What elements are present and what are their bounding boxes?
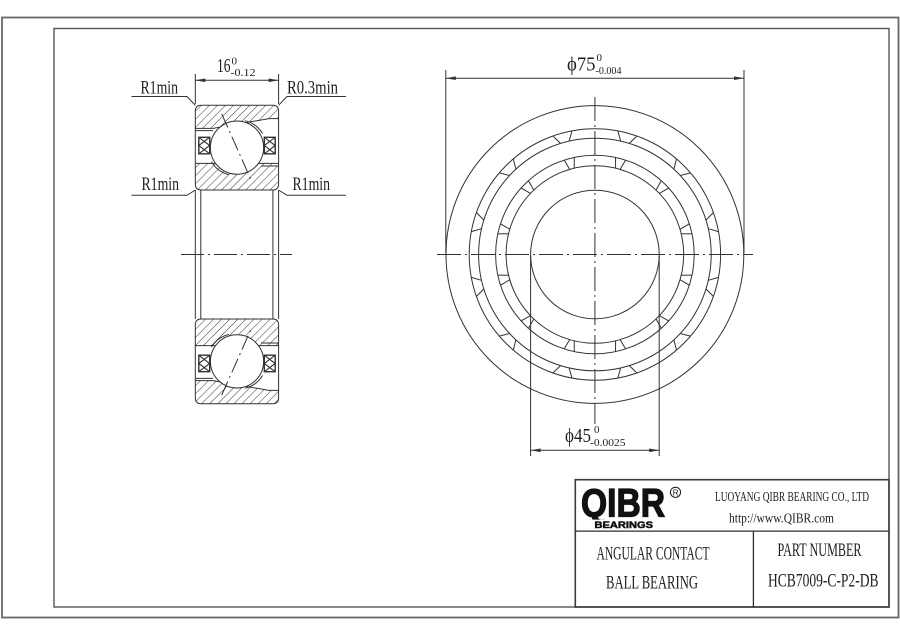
svg-text:R1min: R1min xyxy=(142,174,180,195)
svg-text:HCB7009-C-P2-DB: HCB7009-C-P2-DB xyxy=(768,571,879,592)
svg-text:QIBR: QIBR xyxy=(581,482,665,526)
svg-text:0: 0 xyxy=(594,424,600,436)
svg-text:R0.3min: R0.3min xyxy=(287,78,338,99)
svg-text:R1min: R1min xyxy=(293,174,331,195)
svg-text:R1min: R1min xyxy=(141,78,179,99)
svg-text:PART NUMBER: PART NUMBER xyxy=(778,540,862,561)
svg-text:-0.004: -0.004 xyxy=(596,65,622,77)
svg-text:ANGULAR CONTACT: ANGULAR CONTACT xyxy=(597,544,710,565)
svg-text:0: 0 xyxy=(597,52,603,64)
svg-text:ϕ75: ϕ75 xyxy=(567,55,596,76)
svg-text:-0.12: -0.12 xyxy=(231,67,256,79)
svg-text:ϕ45: ϕ45 xyxy=(565,426,591,447)
svg-text:16: 16 xyxy=(217,56,231,77)
svg-text:R: R xyxy=(673,489,679,498)
svg-text:LUOYANG QIBR BEARING CO., LTD: LUOYANG QIBR BEARING CO., LTD xyxy=(715,489,869,504)
svg-text:BEARINGS: BEARINGS xyxy=(595,520,654,531)
svg-text:BALL BEARING: BALL BEARING xyxy=(606,573,698,594)
svg-text:http://www.QIBR.com: http://www.QIBR.com xyxy=(729,511,834,526)
svg-text:0: 0 xyxy=(232,56,238,68)
svg-text:-0.0025: -0.0025 xyxy=(590,437,626,449)
